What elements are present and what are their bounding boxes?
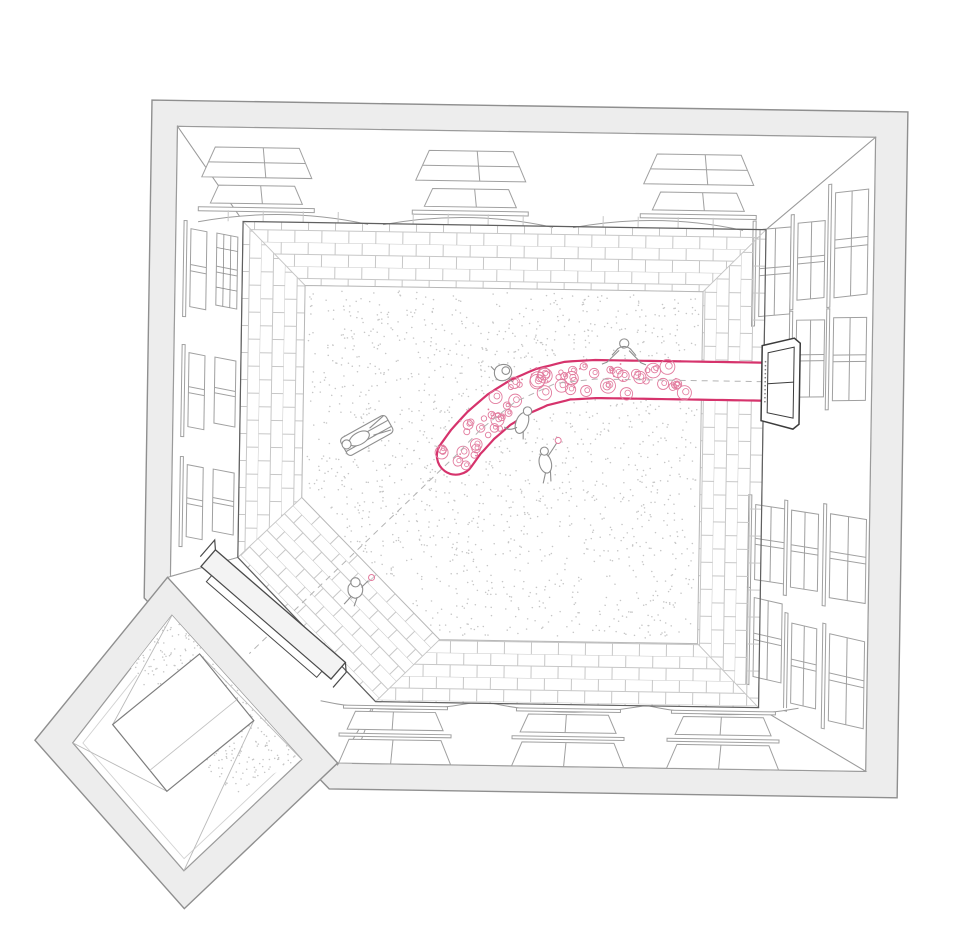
awning-window [667, 744, 779, 770]
awning-window [520, 714, 616, 734]
drawing-canvas [0, 0, 960, 939]
courtyard-door [761, 338, 800, 430]
brick-band-bottom [376, 639, 760, 708]
rotated-scene [32, 98, 908, 919]
awning-window [424, 188, 516, 207]
sash-window [214, 357, 236, 427]
awning-window [675, 716, 771, 736]
awning-window [652, 192, 744, 211]
brick-band-right [697, 229, 767, 708]
awning-window [512, 742, 624, 768]
awning-window [347, 711, 443, 731]
brick-band-top [242, 221, 766, 292]
courtyard-axonometric-drawing [0, 0, 960, 939]
sash-window [186, 465, 203, 540]
awning-window [210, 185, 302, 204]
courtyard-floor [236, 221, 766, 707]
sash-window [216, 233, 238, 309]
sash-window [190, 229, 207, 310]
sash-window [188, 353, 205, 430]
sash-window [212, 469, 234, 535]
awning-window [339, 739, 451, 765]
